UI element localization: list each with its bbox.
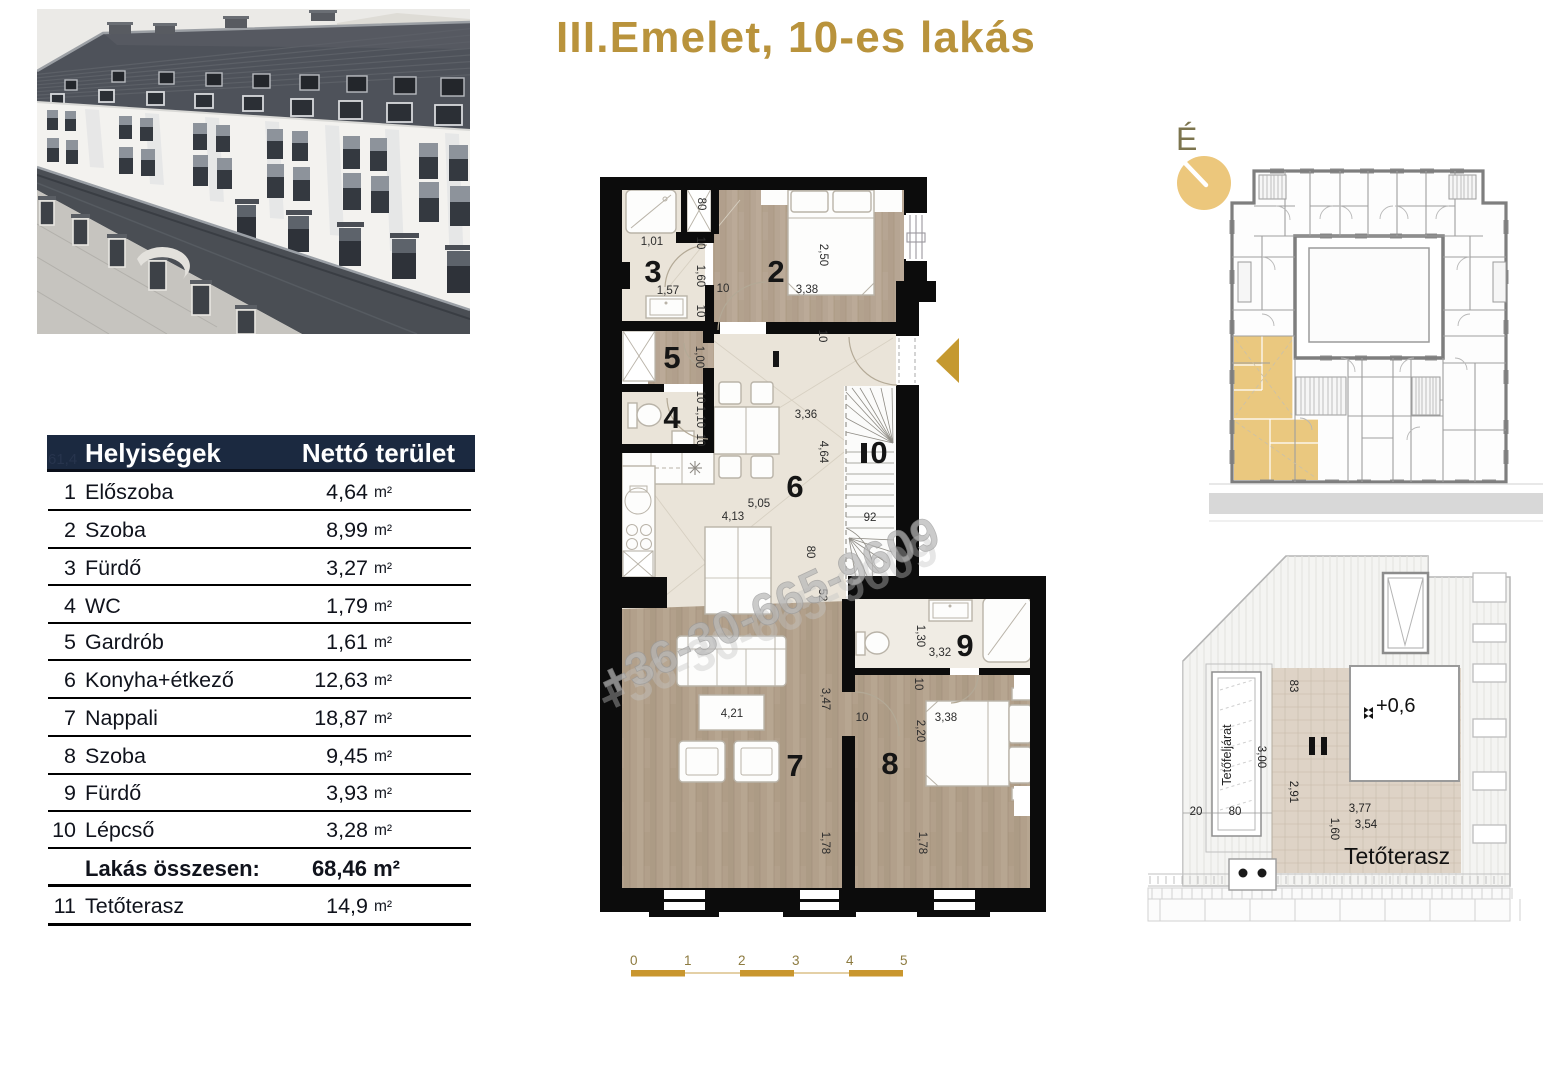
svg-text:3,32: 3,32 xyxy=(929,647,951,659)
svg-text:1,00: 1,00 xyxy=(693,346,705,368)
svg-text:9: 9 xyxy=(956,628,973,663)
svg-text:5,05: 5,05 xyxy=(748,498,770,510)
svg-text:1,60: 1,60 xyxy=(1328,818,1340,840)
svg-text:3: 3 xyxy=(644,254,661,289)
svg-text:5: 5 xyxy=(663,340,680,375)
svg-text:0: 0 xyxy=(870,435,887,470)
svg-text:7: 7 xyxy=(786,748,803,783)
svg-text:3,77: 3,77 xyxy=(1349,803,1371,815)
svg-text:3,36: 3,36 xyxy=(795,409,817,421)
svg-text:2: 2 xyxy=(738,953,746,968)
svg-text:10: 10 xyxy=(694,434,706,447)
svg-text:8: 8 xyxy=(881,746,898,781)
svg-text:4,13: 4,13 xyxy=(722,511,744,523)
svg-text:3,38: 3,38 xyxy=(935,712,957,724)
svg-text:4,21: 4,21 xyxy=(721,708,743,720)
svg-text:4: 4 xyxy=(846,953,854,968)
svg-text:1,78: 1,78 xyxy=(819,832,831,854)
svg-text:80: 80 xyxy=(1229,806,1242,818)
svg-text:10: 10 xyxy=(694,305,706,318)
svg-text:3,47: 3,47 xyxy=(819,688,831,710)
svg-text:10: 10 xyxy=(694,237,706,250)
svg-text:92: 92 xyxy=(864,512,877,524)
svg-text:1,30: 1,30 xyxy=(914,625,926,647)
svg-text:1,01: 1,01 xyxy=(641,236,663,248)
svg-text:+0,6: +0,6 xyxy=(1376,695,1415,717)
svg-text:3: 3 xyxy=(792,953,800,968)
svg-text:3,38: 3,38 xyxy=(796,284,818,296)
svg-text:1,78: 1,78 xyxy=(916,832,928,854)
svg-text:5: 5 xyxy=(900,953,908,968)
svg-text:2,91: 2,91 xyxy=(1287,781,1299,803)
svg-text:4,64: 4,64 xyxy=(817,441,829,464)
svg-text:3,54: 3,54 xyxy=(1355,819,1378,831)
svg-text:10: 10 xyxy=(912,678,924,691)
svg-text:80: 80 xyxy=(695,198,707,211)
svg-text:2: 2 xyxy=(767,254,784,289)
svg-text:10: 10 xyxy=(717,283,730,295)
svg-text:2,50: 2,50 xyxy=(817,244,829,266)
svg-text:Tetőfeljárat: Tetőfeljárat xyxy=(1220,724,1234,786)
svg-text:6: 6 xyxy=(786,469,803,504)
svg-text:10: 10 xyxy=(694,391,706,404)
svg-text:2,20: 2,20 xyxy=(914,720,926,742)
svg-text:20: 20 xyxy=(1190,806,1203,818)
svg-text:3,00: 3,00 xyxy=(1255,746,1267,768)
svg-text:1,60: 1,60 xyxy=(694,265,706,287)
svg-text:1,10: 1,10 xyxy=(694,406,706,428)
svg-text:10: 10 xyxy=(816,330,828,343)
svg-text:1: 1 xyxy=(684,953,692,968)
svg-text:83: 83 xyxy=(1287,680,1299,693)
svg-text:Tetőterasz: Tetőterasz xyxy=(1344,843,1450,869)
svg-text:10: 10 xyxy=(856,712,869,724)
svg-text:0: 0 xyxy=(630,953,638,968)
svg-text:É: É xyxy=(1176,121,1197,157)
svg-text:4: 4 xyxy=(663,400,681,435)
